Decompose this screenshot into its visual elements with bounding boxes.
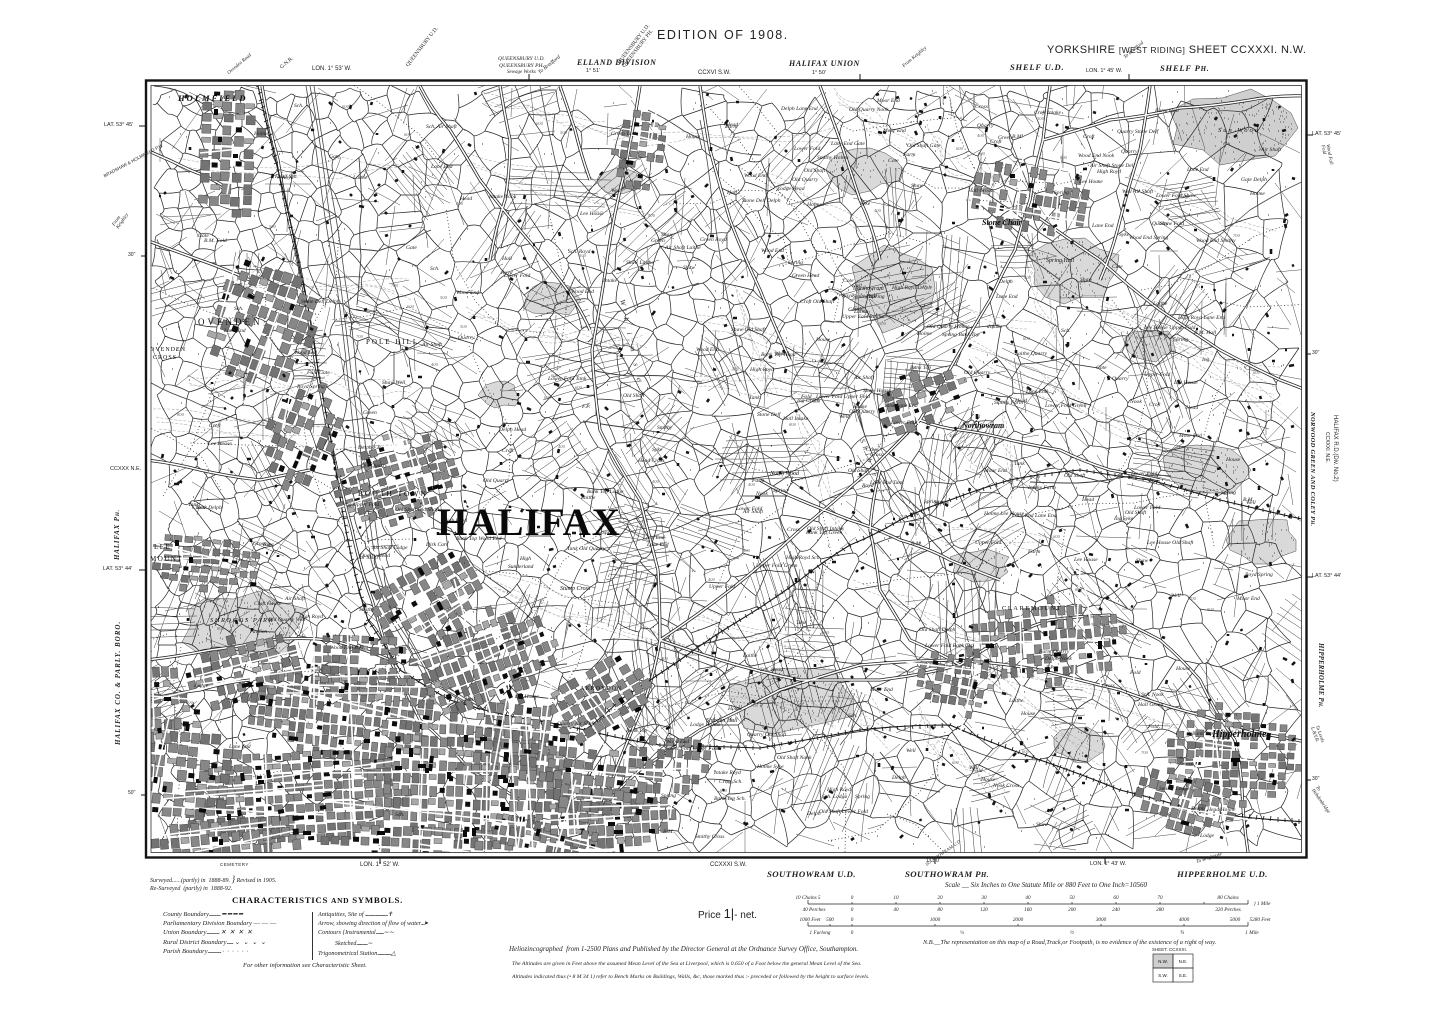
svg-text:Shaw Old Shaft: Shaw Old Shaft: [731, 326, 766, 333]
svg-text:Farm Quarry: Farm Quarry: [1038, 649, 1070, 655]
svg-text:Quarry: Quarry: [1152, 221, 1169, 227]
svg-text:Green: Green: [363, 410, 377, 416]
svg-text:Smithy Farm: Smithy Farm: [994, 400, 1023, 406]
svg-text:Hall Green: Hall Green: [1137, 702, 1163, 708]
svg-text:600: 600: [575, 385, 583, 390]
svg-text:LEE: LEE: [154, 543, 171, 551]
svg-text:Lane End: Lane End: [646, 542, 669, 548]
svg-text:Shaw: Shaw: [683, 265, 695, 271]
svg-text:North Wood: North Wood: [769, 471, 800, 477]
svg-text:Lee House Old Shaft: Lee House Old Shaft: [1146, 539, 1194, 546]
svg-text:High: High: [519, 556, 531, 562]
svg-text:Shibden Hall: Shibden Hall: [706, 718, 738, 724]
svg-text:Bank Top: Bank Top: [910, 365, 931, 371]
svg-text:1000 Feet: 1000 Feet: [800, 917, 821, 923]
svg-text:400: 400: [652, 479, 660, 484]
svg-text:600: 600: [1053, 534, 1061, 539]
svg-text:Lane End: Lane End: [228, 744, 251, 750]
svg-text:Well: Well: [906, 748, 916, 754]
svg-text:Old Quarry: Old Quarry: [483, 478, 510, 484]
svg-text:Croft: Croft: [209, 422, 221, 429]
svg-text:Ing: Ing: [1201, 357, 1210, 363]
svg-text:Sch.: Sch.: [234, 306, 243, 312]
svg-text:CROSS: CROSS: [153, 355, 177, 361]
svg-text:280: 280: [1156, 907, 1164, 913]
svg-text:Sch. Air Shaft: Sch. Air Shaft: [426, 123, 457, 130]
svg-text:3000: 3000: [1096, 917, 1107, 923]
svg-text:400: 400: [456, 201, 464, 206]
svg-text:700: 700: [1141, 750, 1149, 755]
svg-text:800: 800: [921, 680, 929, 685]
svg-text:Hall: Hall: [464, 697, 475, 703]
svg-text:Moor End: Moor End: [882, 128, 906, 134]
svg-text:Sch. Nook: Sch. Nook: [1141, 692, 1164, 698]
svg-text:Stone Delf Delph: Stone Delf Delph: [742, 197, 781, 204]
svg-text:40: 40: [893, 906, 899, 913]
svg-text:500: 500: [732, 366, 740, 371]
svg-text:Croft House: Croft House: [254, 600, 282, 607]
svg-text:Holme: Holme: [253, 131, 269, 137]
svg-text:Stone Chair: Stone Chair: [982, 218, 1023, 227]
svg-text:Shaw House: Shaw House: [863, 388, 891, 394]
svg-text:700: 700: [1233, 233, 1241, 238]
svg-text:Sch.: Sch.: [294, 103, 303, 109]
svg-text:600: 600: [1253, 370, 1261, 375]
svg-text:240: 240: [1112, 906, 1120, 913]
svg-text:House: House: [1225, 457, 1241, 463]
svg-text:Ing: Ing: [262, 542, 271, 548]
svg-text:Old Shaft: Old Shaft: [804, 167, 826, 174]
svg-text:Green Tank: Green Tank: [611, 131, 637, 137]
svg-text:House: House: [980, 777, 996, 783]
svg-text:Old Shaft: Old Shaft: [1064, 472, 1086, 479]
svg-text:High Royd: High Royd: [826, 787, 851, 793]
svg-text:Head: Head: [725, 122, 738, 128]
svg-text:Shaw Well: Shaw Well: [382, 380, 406, 386]
svg-text:Bank Top: Bank Top: [626, 728, 647, 734]
svg-text:500: 500: [440, 295, 448, 300]
svg-text:Laithe Quarry: Laithe Quarry: [1014, 351, 1048, 357]
svg-text:Sch.: Sch.: [1061, 328, 1070, 334]
svg-text:Shaw: Shaw: [1136, 558, 1148, 564]
svg-text:5280 Feet: 5280 Feet: [1250, 917, 1271, 923]
svg-text:500: 500: [269, 224, 277, 229]
svg-text:400: 400: [1024, 275, 1032, 280]
svg-text:120: 120: [980, 907, 988, 913]
svg-text:Northowram: Northowram: [852, 286, 884, 292]
svg-text:Old Shaft Delph: Old Shaft Delph: [919, 626, 956, 633]
svg-text:Wood End Spring: Wood End Spring: [1129, 235, 1168, 241]
svg-text:70: 70: [1157, 895, 1163, 901]
svg-text:Laithe: Laithe: [1008, 698, 1024, 704]
svg-text:0: 0: [851, 907, 854, 913]
svg-text:Upper Fold: Upper Fold: [709, 584, 735, 590]
svg-text:Laithe: Laithe: [352, 175, 368, 181]
svg-text:Smithy Lodge: Smithy Lodge: [1159, 786, 1190, 792]
svg-text:700: 700: [751, 703, 759, 708]
svg-text:Tank: Tank: [1014, 461, 1025, 467]
svg-text:Lower Fold: Lower Fold: [735, 506, 762, 512]
svg-text:Quarry: Quarry: [1121, 149, 1138, 155]
svg-text:Quarry Air Shaft: Quarry Air Shaft: [557, 720, 595, 727]
svg-text:Fold: Fold: [1129, 670, 1141, 676]
svg-text:Intake Farm: Intake Farm: [1027, 485, 1056, 491]
svg-text:Pavilion: Pavilion: [249, 630, 267, 635]
svg-text:Gate: Gate: [329, 154, 340, 160]
svg-text:Smithy: Smithy: [657, 425, 673, 431]
svg-text:600: 600: [1022, 749, 1030, 754]
svg-text:1 Mile: 1 Mile: [1245, 930, 1259, 936]
svg-text:House: House: [685, 134, 701, 140]
svg-text:600: 600: [404, 132, 412, 137]
svg-text:Spring: Spring: [1054, 190, 1069, 196]
svg-text:600: 600: [652, 154, 660, 159]
svg-text:500: 500: [186, 700, 194, 705]
svg-text:Intake Royd: Intake Royd: [713, 770, 741, 776]
svg-text:500: 500: [560, 130, 568, 135]
svg-text:Syke: Syke: [652, 447, 663, 453]
svg-text:Green Royd: Green Royd: [700, 237, 727, 243]
svg-text:600: 600: [551, 373, 559, 378]
svg-text:Lee House Upper Fold: Lee House Upper Fold: [1143, 325, 1196, 331]
svg-text:Delph: Delph: [998, 279, 1013, 285]
svg-text:B.M.: B.M.: [911, 541, 922, 547]
svg-text:Croft: Croft: [502, 447, 514, 454]
svg-text:House: House: [815, 337, 831, 343]
svg-text:800: 800: [813, 399, 821, 404]
svg-text:40: 40: [1025, 894, 1031, 901]
svg-text:Stone Delf Delph: Stone Delf Delph: [301, 298, 340, 305]
svg-text:Lane End: Lane End: [642, 535, 665, 541]
svg-text:700: 700: [726, 780, 734, 785]
svg-text:Gate Delph: Gate Delph: [1241, 177, 1267, 183]
svg-text:800: 800: [217, 626, 225, 631]
svg-text:Quarry: Quarry: [458, 335, 475, 341]
svg-text:Farm: Farm: [1027, 549, 1040, 555]
svg-text:Croft: Croft: [1149, 401, 1161, 408]
svg-text:POLE HILL: POLE HILL: [366, 338, 419, 346]
svg-text:Shaw: Shaw: [911, 183, 923, 189]
svg-text:Well: Well: [839, 414, 849, 420]
svg-text:Fold: Fold: [800, 394, 812, 400]
svg-text:House: House: [727, 706, 743, 712]
svg-text:400: 400: [431, 362, 439, 367]
svg-text:Moor End: Moor End: [1178, 433, 1202, 439]
svg-text:Wood End: Wood End: [456, 290, 479, 296]
svg-text:Hall: Hall: [501, 256, 512, 262]
svg-text:Bank Top Green: Bank Top Green: [806, 530, 842, 536]
svg-text:Lane End: Lane End: [1025, 389, 1048, 395]
svg-text:Old Quarry: Old Quarry: [964, 370, 991, 376]
svg-text:High Royd Lane End: High Royd Lane End: [1177, 315, 1225, 321]
svg-text:Old Quarry: Old Quarry: [361, 463, 388, 469]
svg-text:800: 800: [789, 422, 797, 427]
svg-text:Wood End B.M.: Wood End B.M.: [330, 645, 365, 651]
svg-text:Well: Well: [1246, 500, 1256, 506]
svg-text:MOUNT: MOUNT: [150, 555, 183, 563]
svg-text:Lane End: Lane End: [1186, 167, 1209, 173]
svg-text:Sch. Lodge: Sch. Lodge: [822, 794, 847, 800]
svg-text:Holme Lee House: Holme Lee House: [983, 511, 1025, 517]
svg-text:Delph F.P.: Delph F.P.: [357, 445, 381, 451]
svg-text:30: 30: [981, 895, 987, 901]
svg-text:Laithe: Laithe: [742, 653, 758, 659]
svg-text:80 Chains: 80 Chains: [1217, 895, 1238, 901]
svg-text:Holme Syke: Holme Syke: [756, 764, 784, 770]
svg-text:600: 600: [1023, 336, 1031, 341]
svg-text:Lee House: Lee House: [207, 441, 232, 447]
svg-text:Spring: Spring: [788, 260, 803, 266]
svg-text:Intake: Intake: [852, 404, 867, 410]
svg-text:Cross: Cross: [787, 527, 800, 533]
svg-text:Lee House: Lee House: [1073, 557, 1098, 563]
svg-text:Lower Fold Bank Top: Lower Fold Bank Top: [924, 643, 974, 649]
svg-text:Lodge: Lodge: [193, 683, 209, 689]
svg-text:Northowram: Northowram: [961, 421, 1004, 430]
svg-text:Cote: Cote: [1112, 264, 1123, 270]
svg-text:Quarry: Quarry: [1112, 376, 1129, 382]
svg-text:High Royd: High Royd: [298, 614, 323, 620]
svg-text:600: 600: [342, 104, 350, 109]
svg-text:20: 20: [937, 895, 943, 901]
svg-text:60: 60: [1113, 895, 1119, 901]
svg-text:Lee House: Lee House: [514, 694, 539, 700]
svg-text:Nook Cross: Nook Cross: [992, 783, 1019, 789]
svg-text:600: 600: [952, 760, 960, 765]
svg-text:Lower Fold Upper Fold: Lower Fold Upper Fold: [815, 394, 870, 400]
svg-text:Cote: Cote: [843, 278, 854, 284]
svg-text:Nook: Nook: [1129, 399, 1142, 405]
svg-text:CLAREMOUNT: CLAREMOUNT: [1002, 605, 1062, 612]
svg-text:High Royd: High Royd: [749, 367, 774, 373]
svg-text:Laithe: Laithe: [853, 309, 869, 315]
svg-text:5000: 5000: [1230, 917, 1241, 923]
svg-text:Sch. Head: Sch. Head: [760, 667, 783, 673]
svg-text:800: 800: [1075, 587, 1083, 592]
svg-text:Wood End: Wood End: [571, 289, 594, 295]
svg-text:500: 500: [931, 690, 939, 695]
svg-text:Intake: Intake: [602, 278, 617, 284]
svg-text:High Royd: High Royd: [1096, 169, 1121, 175]
svg-text:Nook: Nook: [755, 491, 768, 497]
svg-text:Shaw: Shaw: [661, 232, 673, 238]
svg-text:Royd: Royd: [281, 175, 294, 181]
svg-text:10: 10: [893, 895, 899, 901]
svg-text:Old Shaft Nook: Old Shaft Nook: [777, 754, 812, 761]
svg-text:Lodge: Lodge: [1199, 833, 1215, 839]
svg-text:Sch.: Sch.: [395, 812, 404, 818]
svg-text:HALIFAX: HALIFAX: [437, 501, 621, 544]
svg-text:Spring: Spring: [855, 794, 870, 800]
svg-text:SHROGGS PARK: SHROGGS PARK: [210, 617, 274, 624]
svg-text:400: 400: [748, 482, 756, 487]
svg-text:600: 600: [956, 146, 964, 151]
svg-text:2000: 2000: [1013, 917, 1024, 923]
svg-text:Moor End: Moor End: [876, 98, 900, 104]
svg-text:Lane End: Lane End: [223, 328, 246, 334]
svg-text:500: 500: [579, 253, 587, 258]
svg-text:High Royd Delph: High Royd Delph: [891, 285, 931, 291]
svg-text:700: 700: [900, 514, 908, 519]
svg-text:Royd: Royd: [500, 270, 513, 276]
svg-text:B.M.: B.M.: [1012, 134, 1023, 140]
svg-text:Spring Bank Top: Spring Bank Top: [942, 332, 980, 338]
svg-text:Royd: Royd: [841, 293, 854, 299]
svg-text:Bank Top Lodge: Bank Top Lodge: [587, 489, 624, 495]
svg-text:Delph: Delph: [806, 811, 821, 817]
svg-text:Royd Spring: Royd Spring: [1244, 572, 1273, 578]
svg-text:800: 800: [1207, 607, 1215, 612]
svg-text:Cross: Cross: [975, 104, 988, 110]
svg-text:Farm: Farm: [902, 152, 915, 158]
svg-text:Stone Delf: Stone Delf: [757, 411, 782, 418]
svg-text:Green: Green: [651, 238, 665, 244]
svg-text:Well: Well: [611, 188, 621, 194]
svg-text:700: 700: [629, 594, 637, 599]
svg-text:Moor End: Moor End: [869, 687, 893, 693]
svg-text:Stump Cross: Stump Cross: [560, 586, 591, 592]
svg-text:Spring: Spring: [773, 488, 788, 494]
svg-text:Tank: Tank: [749, 395, 760, 401]
svg-text:600: 600: [822, 630, 830, 635]
svg-text:Lower Fold Upper Fold: Lower Fold Upper Fold: [664, 746, 719, 752]
svg-text:Air Shaft Stone Delf: Air Shaft Stone Delf: [1089, 162, 1136, 169]
svg-text:Quarry Stone Delf: Quarry Stone Delf: [1117, 128, 1160, 135]
svg-text:Shaw: Shaw: [1080, 277, 1092, 283]
svg-text:Delph Head: Delph Head: [498, 427, 526, 433]
svg-text:Sunderland: Sunderland: [508, 564, 534, 570]
svg-text:1000: 1000: [930, 917, 941, 923]
svg-text:Green: Green: [1180, 761, 1194, 767]
svg-text:Wood End: Wood End: [744, 173, 767, 179]
svg-text:Lower Fold Shaw: Lower Fold Shaw: [1155, 193, 1196, 199]
svg-text:500: 500: [879, 321, 887, 326]
svg-text:Wood End: Wood End: [761, 248, 784, 254]
svg-text:50: 50: [1069, 895, 1075, 901]
svg-text:40 Perches: 40 Perches: [803, 906, 826, 913]
svg-text:Gate: Gate: [406, 245, 417, 251]
svg-text:Ing Upper Fold: Ing Upper Fold: [343, 502, 379, 508]
svg-text:Holme: Holme: [1249, 191, 1265, 197]
svg-text:Moor End: Moor End: [1236, 596, 1260, 602]
svg-text:Old Shaft Gate: Old Shaft Gate: [907, 142, 941, 149]
svg-text:Cote: Cote: [888, 158, 899, 164]
svg-text:Sch.: Sch.: [430, 266, 439, 272]
svg-text:Shaw: Shaw: [1036, 822, 1048, 828]
svg-text:Lee House: Lee House: [1173, 380, 1198, 386]
svg-text:Green: Green: [998, 135, 1012, 141]
svg-text:Hipperholme: Hipperholme: [1211, 729, 1267, 740]
svg-text:F.P.: F.P.: [581, 404, 590, 410]
svg-text:F.P.: F.P.: [1045, 665, 1054, 671]
svg-text:Lower Fold: Lower Fold: [1130, 471, 1157, 477]
svg-text:200: 200: [1068, 907, 1076, 913]
svg-text:House: House: [1020, 711, 1036, 717]
svg-text:BOOTH TOWN: BOOTH TOWN: [358, 489, 428, 498]
svg-text:B.M.: B.M.: [663, 829, 674, 835]
svg-text:Lee House: Lee House: [1078, 179, 1103, 185]
svg-text:S.W.: S.W.: [1158, 973, 1168, 978]
svg-text:400: 400: [708, 577, 716, 582]
svg-text:Farm Hall: Farm Hall: [1154, 108, 1179, 114]
svg-text:Sun Wood: Sun Wood: [1218, 127, 1260, 134]
svg-text:Syke: Syke: [860, 201, 871, 207]
svg-text:0: 0: [851, 917, 854, 923]
svg-text:Tank: Tank: [796, 620, 807, 626]
svg-text:Delph Lane End: Delph Lane End: [780, 106, 818, 112]
svg-text:Cross: Cross: [1102, 683, 1115, 689]
svg-text:W h i m s e y: W h i m s e y: [618, 299, 648, 402]
svg-text:Fold Gate: Fold Gate: [306, 370, 330, 376]
svg-text:Hall Cross: Hall Cross: [967, 188, 992, 194]
svg-text:Delph: Delph: [891, 775, 906, 781]
svg-text:House: House: [1175, 666, 1191, 672]
svg-text:Upper Fold Green: Upper Fold Green: [756, 563, 798, 569]
svg-text:Croft Old Shaft: Croft Old Shaft: [800, 298, 835, 305]
svg-text:10 Chains 5: 10 Chains 5: [795, 895, 820, 901]
svg-text:AKROYDON: AKROYDON: [580, 686, 622, 692]
svg-text:Green Head: Green Head: [792, 273, 819, 279]
svg-text:N.W.: N.W.: [1158, 959, 1168, 964]
svg-text:Laithe: Laithe: [1152, 301, 1168, 307]
svg-text:Delph: Delph: [1190, 806, 1205, 812]
svg-text:Smithy: Smithy: [934, 500, 950, 506]
svg-text:B.M. Fold: B.M. Fold: [204, 238, 227, 244]
svg-text:Croft Intake: Croft Intake: [1034, 109, 1061, 116]
svg-text:B.M. Hall: B.M. Hall: [1194, 330, 1217, 336]
svg-text:Moor End: Moor End: [983, 468, 1007, 474]
svg-text:Fold: Fold: [1147, 724, 1159, 730]
svg-text:800: 800: [177, 412, 185, 417]
svg-text:Lane End: Lane End: [995, 294, 1018, 300]
svg-text:500: 500: [1037, 116, 1045, 121]
svg-text:Upper Fold: Upper Fold: [975, 540, 1001, 546]
svg-text:Air Shaft: Air Shaft: [1260, 146, 1281, 153]
svg-text:600: 600: [544, 395, 552, 400]
svg-text:4000: 4000: [1179, 916, 1190, 923]
svg-text:Sch.: Sch.: [848, 713, 857, 719]
svg-text:Cote: Cote: [1096, 365, 1107, 371]
svg-text:Spring Hall: Spring Hall: [1046, 258, 1075, 264]
svg-text:1 Furlong: 1 Furlong: [810, 930, 831, 936]
svg-text:160: 160: [1024, 907, 1032, 913]
svg-text:700: 700: [391, 283, 399, 288]
svg-text:HOLMFIELD: HOLMFIELD: [177, 93, 247, 103]
svg-text:Lower Fold: Lower Fold: [793, 146, 820, 152]
svg-text:Old Quarry Nook: Old Quarry Nook: [849, 107, 889, 113]
svg-text:Tank Old Quarry: Tank Old Quarry: [567, 546, 606, 552]
svg-text:Quarry Old Shaft: Quarry Old Shaft: [747, 731, 787, 738]
svg-text:400: 400: [874, 208, 882, 213]
svg-text:OVENDEN: OVENDEN: [198, 317, 263, 327]
svg-text:Croft: Croft: [1083, 133, 1095, 140]
svg-text:Holme: Holme: [806, 202, 822, 208]
svg-text:Head: Head: [1185, 405, 1198, 411]
svg-text:Well Air Shaft: Well Air Shaft: [1122, 188, 1154, 195]
svg-text:Lane End Gate: Lane End Gate: [830, 141, 865, 147]
svg-text:400: 400: [949, 433, 957, 438]
svg-text:Delph Nook: Delph Nook: [1044, 656, 1072, 662]
svg-text:Intake: Intake: [987, 324, 1002, 330]
svg-text:Wood End Nook: Wood End Nook: [1078, 153, 1115, 159]
svg-text:Old Quarry: Old Quarry: [792, 177, 819, 183]
svg-text:½: ½: [1070, 929, 1074, 936]
svg-text:Air Shaft: Air Shaft: [421, 341, 442, 348]
svg-text:Royd Spring: Royd Spring: [296, 384, 325, 390]
svg-text:400: 400: [648, 213, 656, 218]
svg-text:700: 700: [356, 334, 364, 339]
svg-text:Lane End: Lane End: [430, 164, 453, 170]
